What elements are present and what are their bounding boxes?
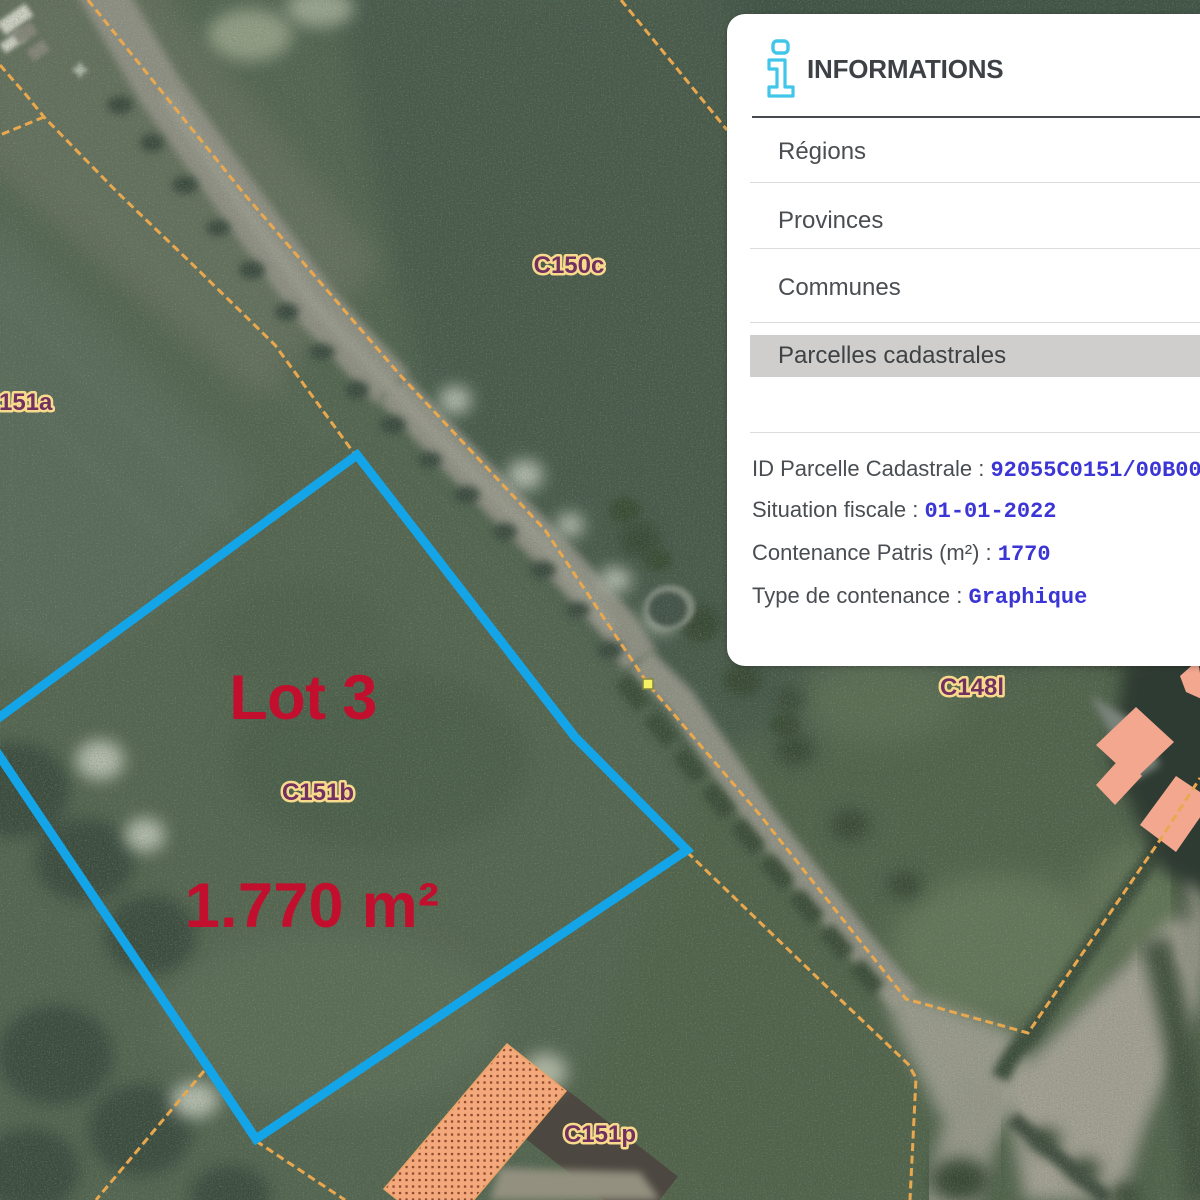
svg-text:C148l: C148l xyxy=(940,674,1004,701)
svg-text:C151b: C151b xyxy=(282,779,354,806)
svg-text:C150c: C150c xyxy=(534,252,605,279)
svg-text:Lot 3: Lot 3 xyxy=(229,663,377,733)
svg-text:C151a: C151a xyxy=(0,389,53,416)
svg-text:C151p: C151p xyxy=(564,1121,636,1148)
svg-text:1.770 m²: 1.770 m² xyxy=(185,871,440,941)
